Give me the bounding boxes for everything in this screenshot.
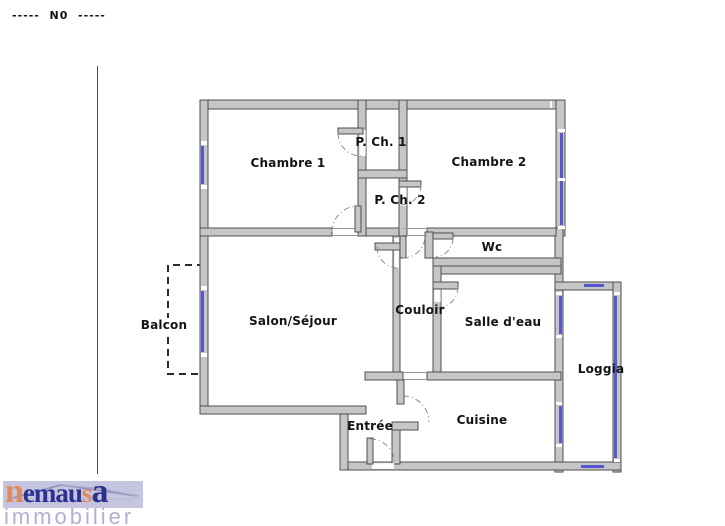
logo-subtitle: immobilier <box>4 506 134 526</box>
room-label-pch1: P. Ch. 1 <box>355 135 406 149</box>
room-label-loggia: Loggia <box>578 362 624 376</box>
floor-plan-page: ----- N0 ----- <box>0 0 725 526</box>
room-label-balcon: Balcon <box>139 318 189 332</box>
floor-plan: Chambre 1P. Ch. 1P. Ch. 2Chambre 2WcSalo… <box>0 0 725 526</box>
room-label-cuisine: Cuisine <box>457 413 508 427</box>
room-label-chambre1: Chambre 1 <box>251 156 326 170</box>
room-label-wc: Wc <box>482 240 503 254</box>
room-label-salledeau: Salle d'eau <box>465 315 542 329</box>
room-label-pch2: P. Ch. 2 <box>374 193 425 207</box>
floor-plan-svg <box>0 0 725 526</box>
room-label-entree: Entrée <box>347 419 393 433</box>
room-label-salon: Salon/Séjour <box>249 314 337 328</box>
room-label-couloir: Couloir <box>395 303 444 317</box>
room-label-chambre2: Chambre 2 <box>452 155 527 169</box>
agency-logo: nemausa immobilier <box>3 481 163 526</box>
